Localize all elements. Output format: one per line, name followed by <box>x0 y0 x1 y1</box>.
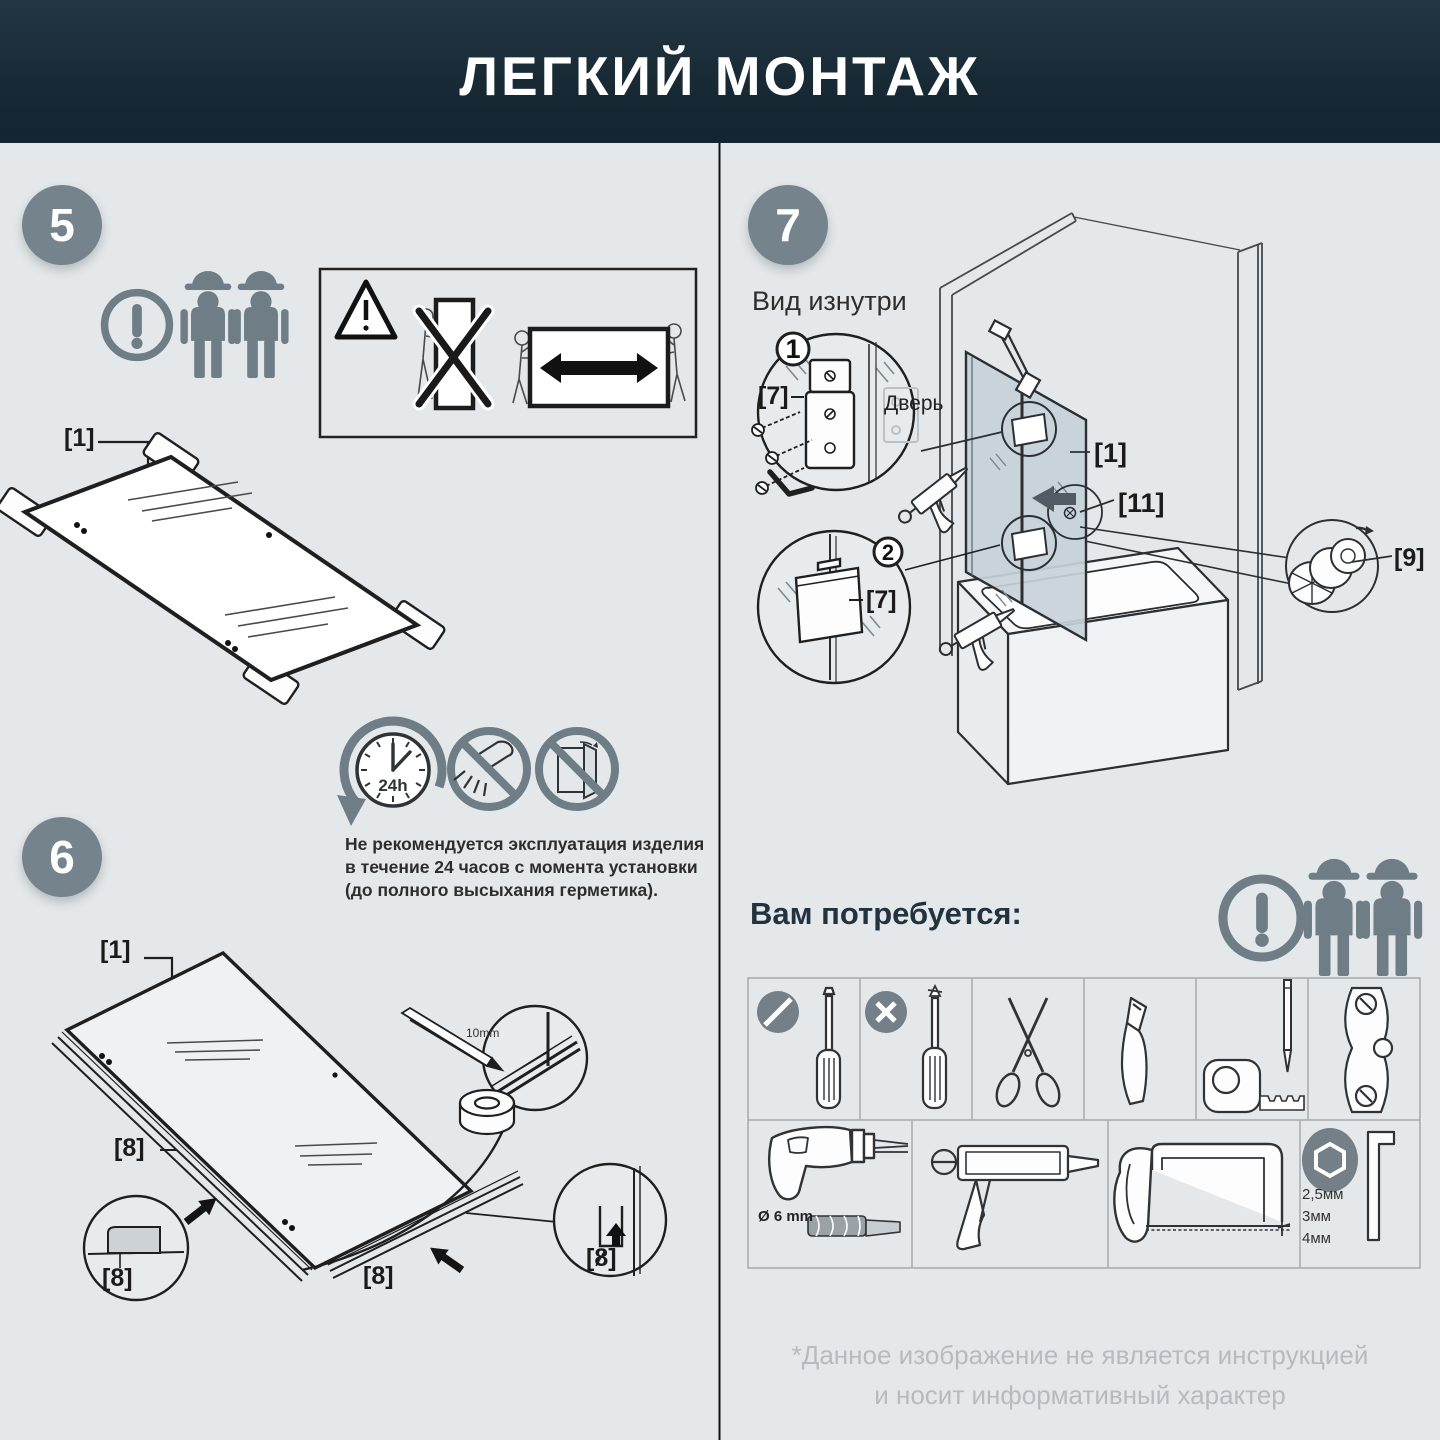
disclaimer-line-1: *Данное изображение не является инструкц… <box>720 1340 1440 1371</box>
adhesive-tape-icon <box>460 1090 514 1134</box>
cap-detail <box>1286 520 1392 612</box>
label-part8-detail-left: [8] <box>102 1264 133 1293</box>
disclaimer-line-2: и носит информативный характер <box>720 1380 1440 1411</box>
curing-note: Не рекомендуется эксплуатация изделия в … <box>345 833 705 902</box>
hex-size-3: 4мм <box>1302 1230 1331 1247</box>
clock-24h-icon <box>337 721 442 826</box>
label-part1-step6: [1] <box>100 936 131 965</box>
phillips-screwdriver-icon <box>865 986 946 1108</box>
hacksaw-icon <box>1114 1144 1290 1242</box>
detail-2-number: 2 <box>876 540 900 566</box>
warning-icon <box>105 293 170 358</box>
label-part8-bottom: [8] <box>363 1262 394 1291</box>
tools-workers-icon <box>1304 859 1422 976</box>
door-label: Дверь <box>884 392 943 416</box>
inside-view-label: Вид изнутри <box>752 286 907 317</box>
block-arrow-up-left <box>425 1240 467 1277</box>
label-part7-top: [7] <box>758 382 789 411</box>
label-part8-left: [8] <box>114 1134 145 1163</box>
carry-warning-box <box>320 269 696 437</box>
drill-diameter-label: Ø 6 mm <box>758 1208 813 1225</box>
label-part1-step7: [1] <box>1094 438 1127 469</box>
warning-triangle-icon <box>337 282 395 337</box>
hinge-plate-detail <box>806 360 854 468</box>
label-10mm: 10mm <box>466 1026 499 1040</box>
step5-glass-panel <box>0 432 446 706</box>
tape-measure-pencil-icon <box>1204 980 1304 1112</box>
carry-horizontal-arrow-icon <box>513 324 685 406</box>
bubble-level-icon <box>1345 988 1392 1112</box>
no-shower-icon <box>451 731 527 807</box>
detail-1-number: 1 <box>780 334 806 365</box>
hex-size-1: 2,5мм <box>1302 1186 1343 1203</box>
label-part11: [11] <box>1118 488 1165 519</box>
tools-heading: Вам потребуется: <box>750 896 1022 932</box>
caulking-gun-icon <box>932 1146 1098 1249</box>
label-part1-step5: [1] <box>64 424 95 453</box>
no-vertical-carry-icon <box>418 300 488 408</box>
seal-profile-detail-left <box>84 1196 188 1300</box>
label-part9: [9] <box>1394 544 1425 573</box>
utility-knife-icon <box>1122 998 1147 1104</box>
hex-size-2: 3мм <box>1302 1208 1331 1225</box>
label-part8-detail-right: [8] <box>586 1244 617 1273</box>
scissors-icon <box>992 998 1063 1110</box>
no-door-swing-icon <box>539 731 615 807</box>
tools-warning-icon <box>1223 879 1301 957</box>
two-workers-icon <box>180 271 288 378</box>
clock-24h-text: 24h <box>363 776 423 796</box>
flat-screwdriver-icon <box>757 988 840 1108</box>
diagram-canvas <box>0 0 1440 1440</box>
label-part7-bottom: [7] <box>866 586 897 615</box>
drill-bit-icon <box>808 1216 900 1236</box>
block-arrow-up-right <box>180 1191 222 1229</box>
